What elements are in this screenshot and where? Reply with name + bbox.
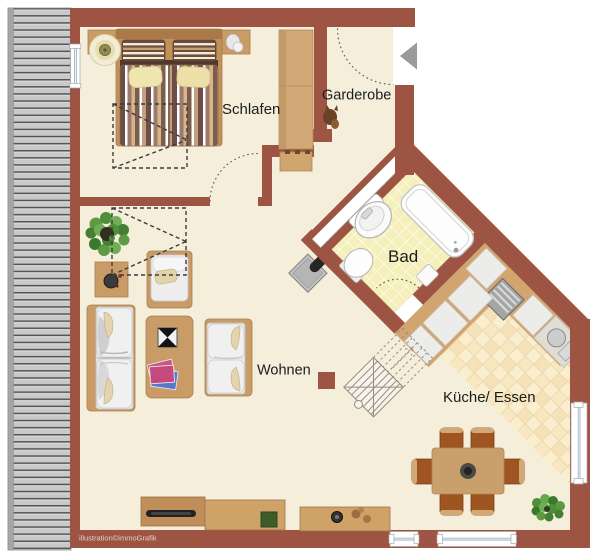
svg-text:Küche/ Essen: Küche/ Essen <box>443 389 536 406</box>
svg-text:Bad: Bad <box>388 247 418 266</box>
svg-text:illustration©immoGrafik: illustration©immoGrafik <box>79 534 157 543</box>
svg-text:Garderobe: Garderobe <box>322 88 391 104</box>
svg-text:Wohnen: Wohnen <box>257 363 311 379</box>
svg-text:Schlafen: Schlafen <box>222 101 280 118</box>
